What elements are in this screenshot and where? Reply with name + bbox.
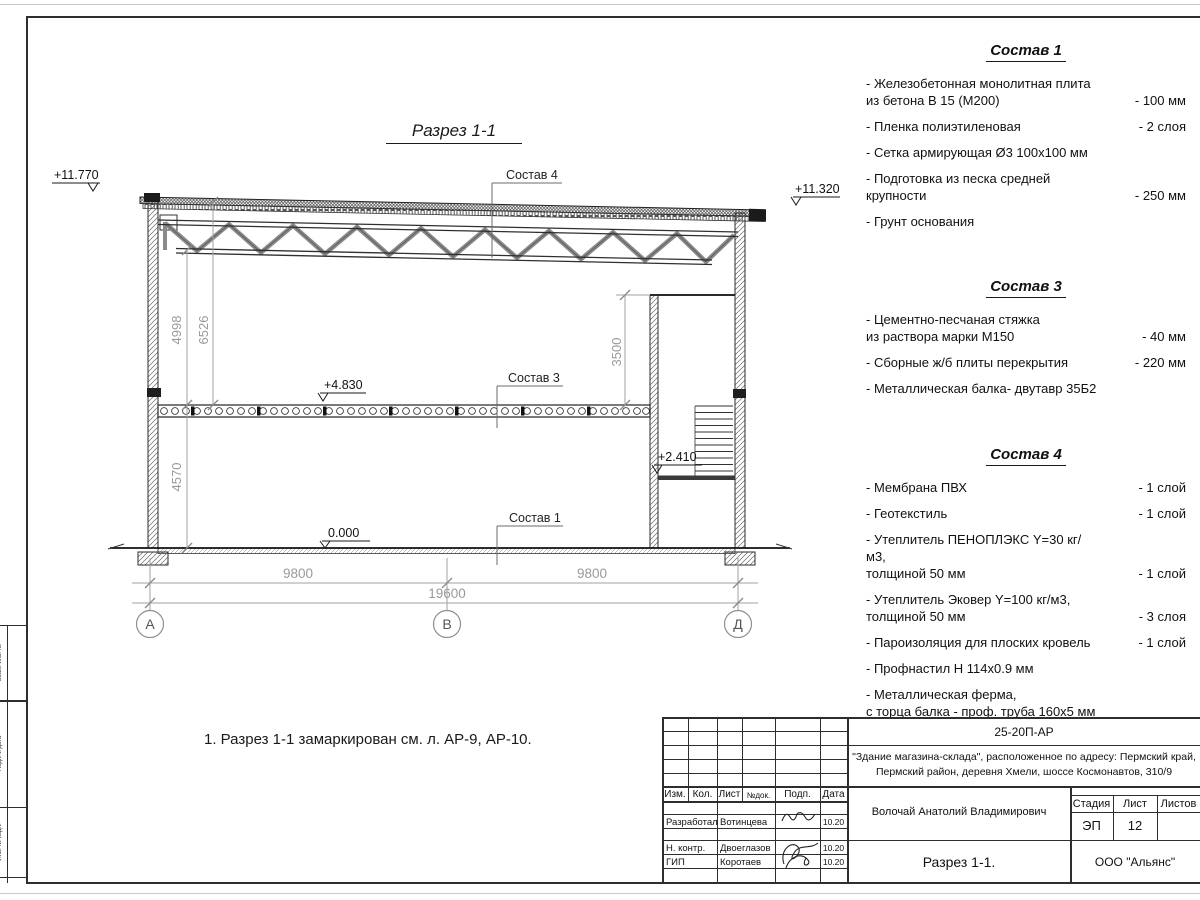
dim-4570: 4570 [169,463,184,492]
col-izm: Изм. [662,789,688,800]
chief-name: Волочай Анатолий Владимирович [848,806,1070,818]
item-name: - Подготовка из песка средней крупности [866,170,1050,204]
left-wall [148,200,158,548]
inner-wall [650,295,658,548]
composition-title: Состав 1 [866,42,1186,59]
item-name: - Утеплитель ПЕНОПЛЭКС Y=30 кг/м3, толщи… [866,531,1098,582]
item-value: - 1 слой [1132,634,1186,651]
item-value: - 2 слоя [1133,118,1186,135]
item-name: - Геотекстиль [866,505,947,522]
roof-cap-left [144,193,160,202]
roof-cap-right [749,209,766,222]
dim-3500: 3500 [609,338,624,367]
axis-a: А [145,616,155,632]
company-name: ООО "Альянс" [1070,855,1200,869]
list-item: - Пленка полиэтиленовая- 2 слоя [866,118,1186,135]
name-developer: Вотинцева [720,817,767,828]
name-gip: Коротаев [720,857,761,868]
col-data: Дата [820,789,847,800]
role-developer: Разработал [666,817,718,828]
elev-roof-right: +11.320 [795,182,840,196]
truss-diagonals [165,223,734,262]
item-value: - 250 мм [1129,187,1186,204]
roof-assembly [140,193,766,222]
list-item: - Утеплитель ПЕНОПЛЭКС Y=30 кг/м3, толщи… [866,531,1186,582]
beam-left [147,388,161,397]
composition-list-3: Состав 3 - Цементно-песчаная стяжка из р… [866,278,1186,406]
beam-right [733,389,746,398]
item-value: - 40 мм [1136,328,1186,345]
item-name: - Мембрана ПВХ [866,479,967,496]
dim-span-left: 9800 [283,566,313,581]
item-name: - Цементно-песчаная стяжка из раствора м… [866,311,1040,345]
item-name: - Пароизоляция для плоских кровель [866,634,1090,651]
list-item: - Утеплитель Эковер Y=100 кг/м3, толщино… [866,591,1186,625]
document-code: 25-20П-АР [848,725,1200,739]
list-item: - Металлическая ферма, с торца балка - п… [866,686,1186,720]
bottom-dimensions: 9800 9800 19600 А В Д [132,558,758,638]
composition-list-1: Состав 1 - Железобетонная монолитная пли… [866,42,1186,239]
foundation-left [138,552,168,565]
signature-gip [776,838,822,870]
project-name-line1: "Здание магазина-склада", расположенное … [848,751,1200,763]
roof-truss [158,220,738,265]
signature-developer [778,808,818,826]
floor-slab [158,405,650,417]
item-name: - Металлическая ферма, с торца балка - п… [866,686,1095,720]
sheet-title: Разрез 1-1. [848,854,1070,870]
item-name: - Утеплитель Эковер Y=100 кг/м3, толщино… [866,591,1070,625]
list-item: - Подготовка из песка средней крупности-… [866,170,1186,204]
sheet-label: Лист [1113,798,1157,810]
stage-value: ЭП [1070,818,1113,833]
item-name: - Пленка полиэтиленовая [866,118,1021,135]
item-name: - Металлическая балка- двутавр 35Б2 [866,380,1096,397]
item-name: - Профнастил Н 114х0.9 мм [866,660,1034,677]
col-list: Лист [717,789,742,800]
ground [108,544,792,565]
dim-6526: 6526 [196,316,211,345]
role-ncontrol: Н. контр. [666,843,705,854]
list-item: - Пароизоляция для плоских кровель- 1 сл… [866,634,1186,651]
list-item: - Цементно-песчаная стяжка из раствора м… [866,311,1186,345]
elev-roof-left: +11.770 [54,168,99,182]
list-item: - Металлическая балка- двутавр 35Б2 [866,380,1186,397]
item-value: - 220 мм [1129,354,1186,371]
item-value: - 1 слой [1132,479,1186,496]
axis-d: Д [733,616,743,632]
composition-list-4: Состав 4 - Мембрана ПВХ- 1 слой - Геотек… [866,446,1186,729]
col-ndok: №док. [742,791,775,800]
stair-landing [658,476,735,481]
item-value: - 1 слой [1132,505,1186,522]
name-ncontrol: Двоеглазов [720,843,771,854]
project-name-line2: Пермский район, деревня Хмели, шоссе Кос… [848,766,1200,778]
list-item: - Профнастил Н 114х0.9 мм [866,660,1186,677]
role-gip: ГИП [666,857,685,868]
elev-landing: +2.410 [658,450,697,464]
date-gip: 10.20 [820,857,847,867]
list-item: - Сборные ж/б плиты перекрытия- 220 мм [866,354,1186,371]
item-name: - Железобетонная монолитная плита из бет… [866,75,1091,109]
layer-ref-3: Состав 3 [508,371,560,385]
stairs [658,406,735,480]
date-developer: 10.20 [820,817,847,827]
item-value: - 1 слой [1132,565,1186,582]
dim-4998: 4998 [169,316,184,345]
layer-ref-4: Состав 4 [506,168,558,182]
drawing-sheet: Взам. инв. № Подп. и дата Инв. № подл. Р… [0,0,1200,900]
axis-b: В [442,616,451,632]
item-value: - 3 слоя [1133,608,1186,625]
list-item: - Сетка армирующая Ø3 100х100 мм [866,144,1186,161]
dim-span-total: 19600 [428,586,466,601]
elevation-marks [52,183,840,548]
list-item: - Железобетонная монолитная плита из бет… [866,75,1186,109]
list-item: - Грунт основания [866,213,1186,230]
item-name: - Сборные ж/б плиты перекрытия [866,354,1068,371]
right-wall [735,213,745,548]
col-kol: Кол. [688,789,717,800]
sheets-label: Листов [1157,798,1200,810]
item-name: - Сетка армирующая Ø3 100х100 мм [866,144,1088,161]
item-name: - Грунт основания [866,213,974,230]
composition-title: Состав 4 [866,446,1186,463]
list-item: - Мембрана ПВХ- 1 слой [866,479,1186,496]
elev-floor2: +4.830 [324,378,363,392]
stage-label: Стадия [1070,798,1113,810]
list-item: - Геотекстиль- 1 слой [866,505,1186,522]
dim-span-right: 9800 [577,566,607,581]
date-ncontrol: 10.20 [820,843,847,853]
item-value: - 100 мм [1129,92,1186,109]
elev-ground: 0.000 [328,526,359,540]
col-podp: Подп. [775,789,820,800]
composition-title: Состав 3 [866,278,1186,295]
foundation-right [725,552,755,565]
layer-ref-1: Состав 1 [509,511,561,525]
sheet-number: 12 [1113,818,1157,833]
